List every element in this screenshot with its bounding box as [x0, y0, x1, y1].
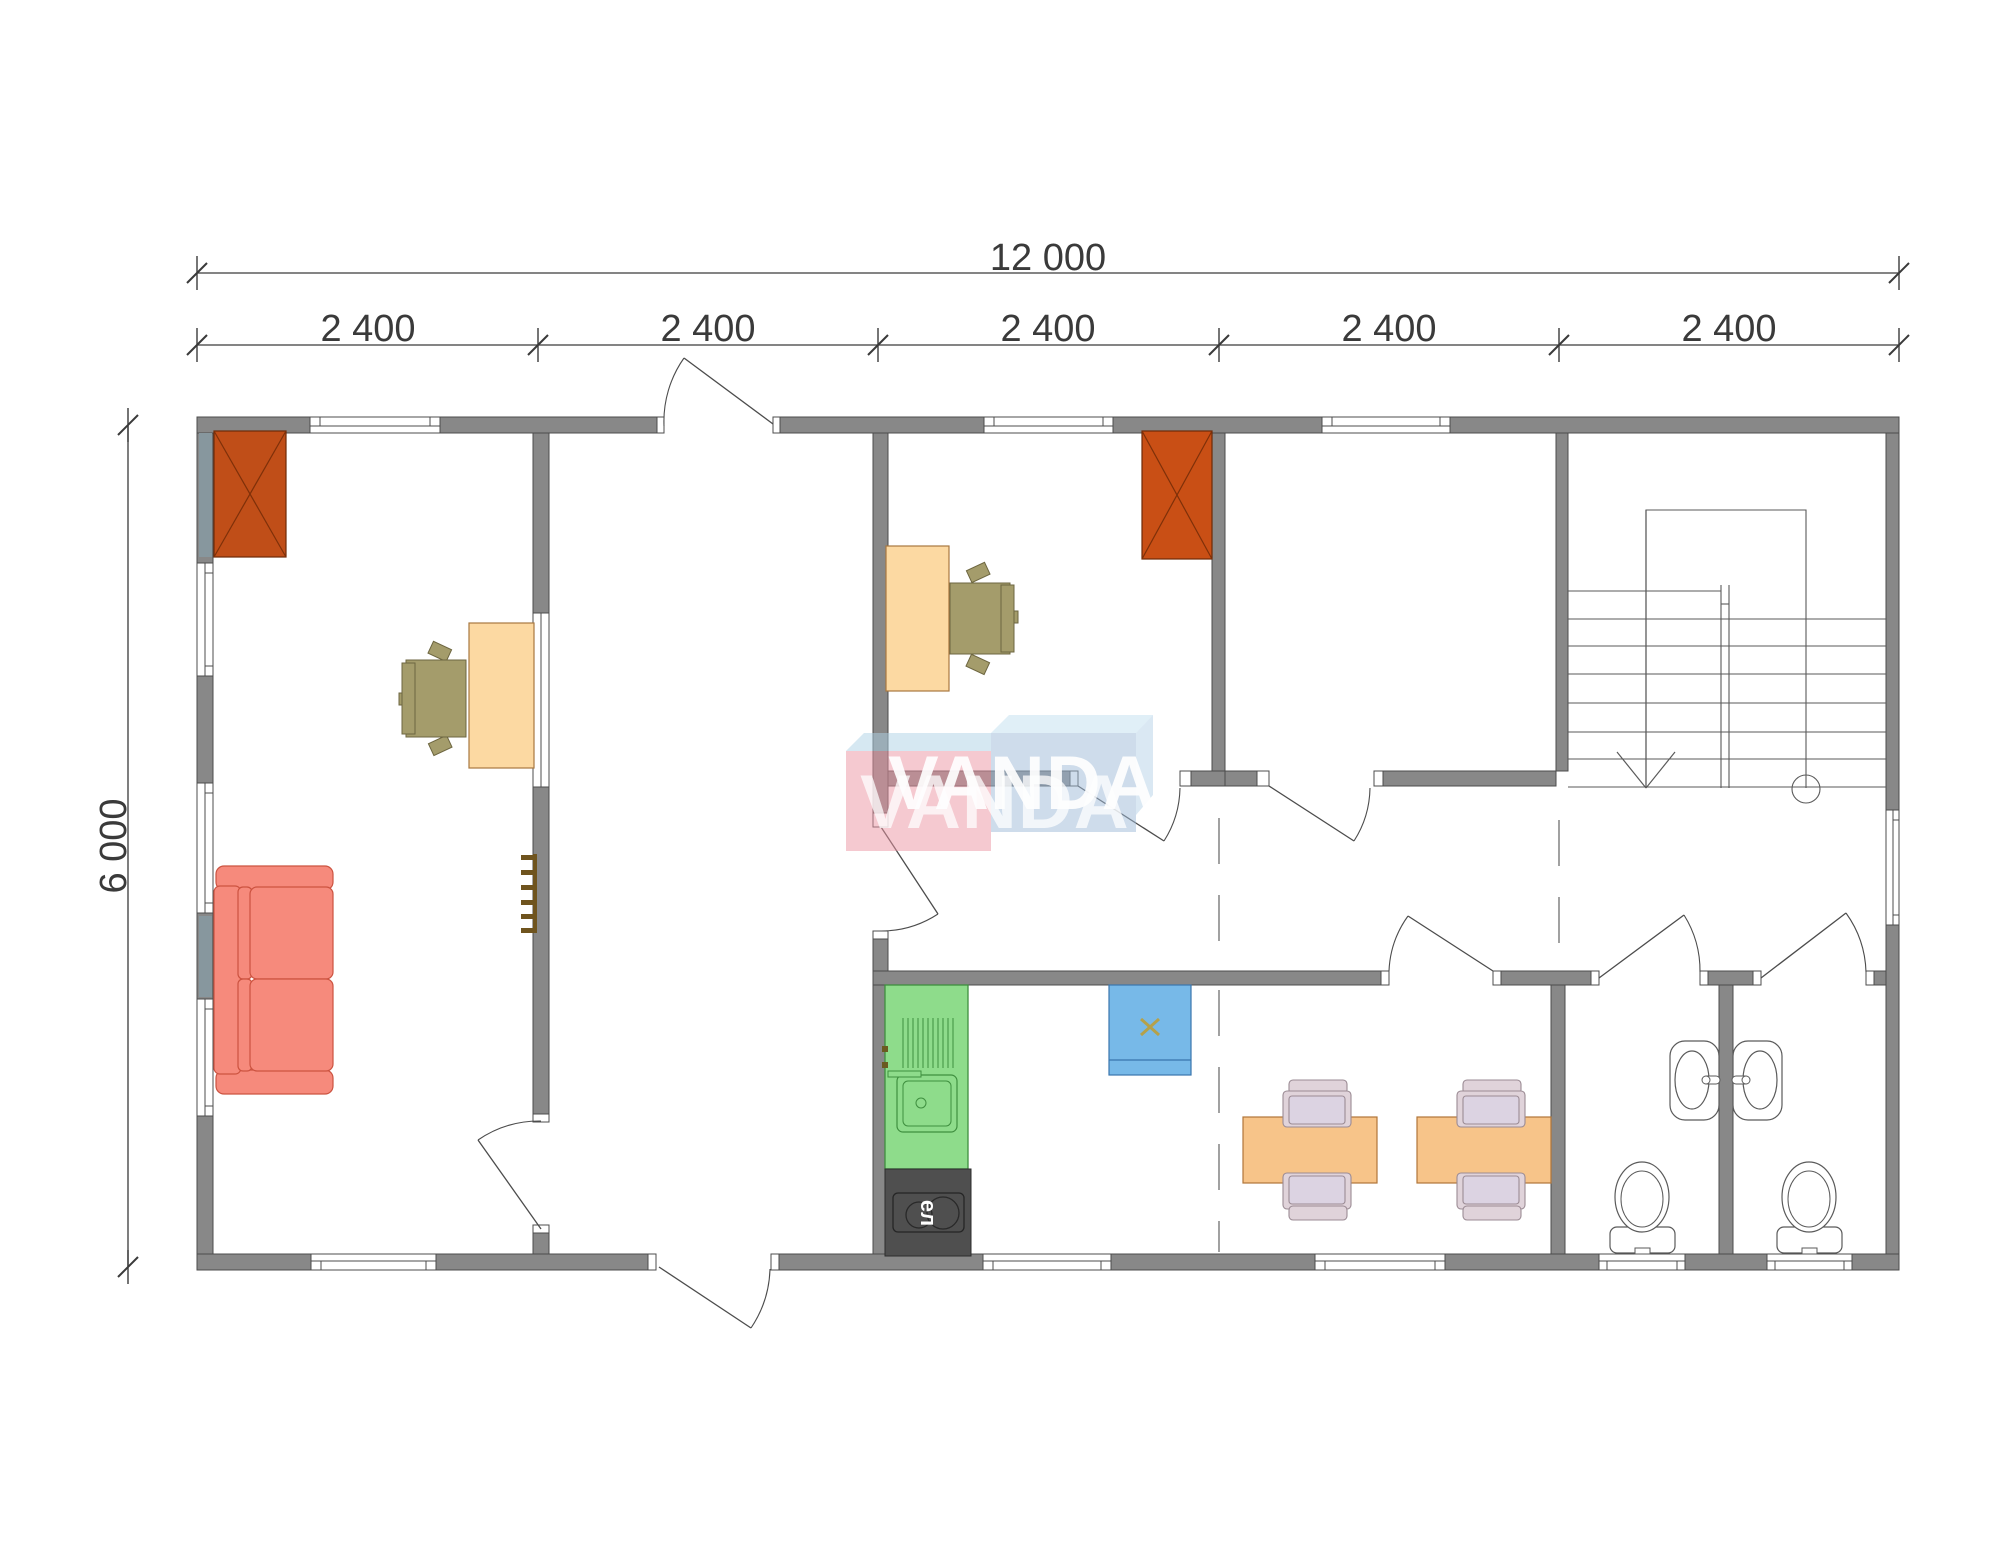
- svg-text:2 400: 2 400: [320, 308, 415, 350]
- svg-text:2 400: 2 400: [1000, 308, 1095, 350]
- svg-text:2 400: 2 400: [1681, 308, 1776, 350]
- svg-text:VANDA: VANDA: [888, 741, 1158, 826]
- svg-text:12 000: 12 000: [990, 237, 1106, 279]
- svg-text:ел: ел: [916, 1200, 941, 1226]
- svg-text:2 400: 2 400: [660, 308, 755, 350]
- svg-text:2 400: 2 400: [1341, 308, 1436, 350]
- svg-text:6 000: 6 000: [93, 798, 135, 893]
